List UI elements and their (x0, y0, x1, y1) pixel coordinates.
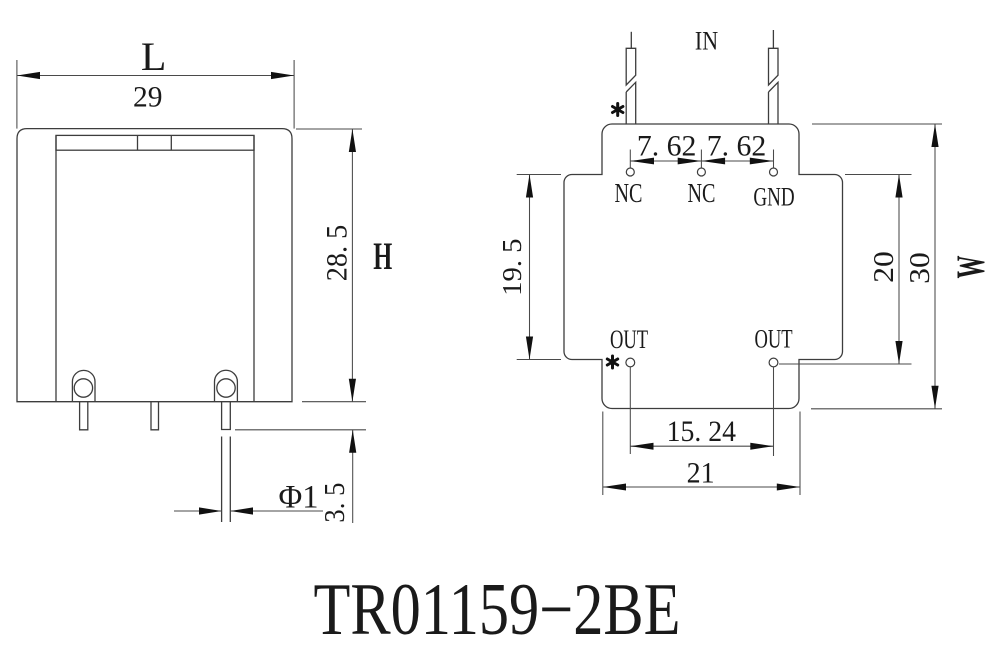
svg-text:TR01159−2BE: TR01159−2BE (314, 569, 681, 651)
svg-text:15. 24: 15. 24 (667, 416, 737, 448)
svg-text:L: L (141, 34, 167, 79)
svg-text:30: 30 (904, 252, 936, 284)
svg-text:OUT: OUT (610, 324, 648, 354)
svg-text:IN: IN (695, 25, 718, 55)
svg-text:19. 5: 19. 5 (497, 239, 527, 296)
svg-text:3. 5: 3. 5 (319, 483, 351, 523)
svg-text:29: 29 (133, 81, 163, 113)
svg-text:21: 21 (687, 457, 715, 490)
svg-text:NC: NC (615, 178, 643, 208)
svg-text:H: H (373, 235, 392, 278)
svg-text:OUT: OUT (754, 324, 792, 354)
svg-text:GND: GND (753, 182, 794, 212)
svg-text:20: 20 (868, 251, 900, 283)
svg-text:7. 62: 7. 62 (707, 131, 767, 163)
svg-text:28. 5: 28. 5 (322, 225, 354, 281)
svg-text:Φ1: Φ1 (279, 480, 319, 516)
svg-text:NC: NC (688, 178, 716, 208)
svg-text:W: W (948, 256, 993, 279)
svg-text:7. 62: 7. 62 (637, 131, 697, 163)
